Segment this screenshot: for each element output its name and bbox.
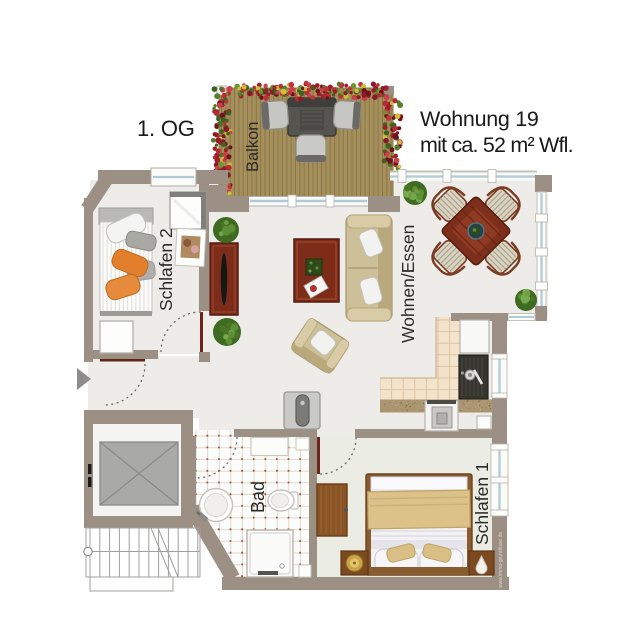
svg-text:Balkon: Balkon [244,122,262,172]
svg-text:www.immo-grundrisse.de: www.immo-grundrisse.de [498,532,504,588]
svg-text:Wohnen/Essen: Wohnen/Essen [398,225,418,343]
svg-text:1. OG: 1. OG [137,116,195,141]
svg-text:mit ca. 52 m² Wfl.: mit ca. 52 m² Wfl. [420,133,573,157]
svg-text:Schlafen 1: Schlafen 1 [472,462,492,545]
svg-text:Schlafen 2: Schlafen 2 [156,228,176,311]
svg-text:Wohnung 19: Wohnung 19 [420,107,539,131]
svg-text:Bad: Bad [248,481,268,513]
